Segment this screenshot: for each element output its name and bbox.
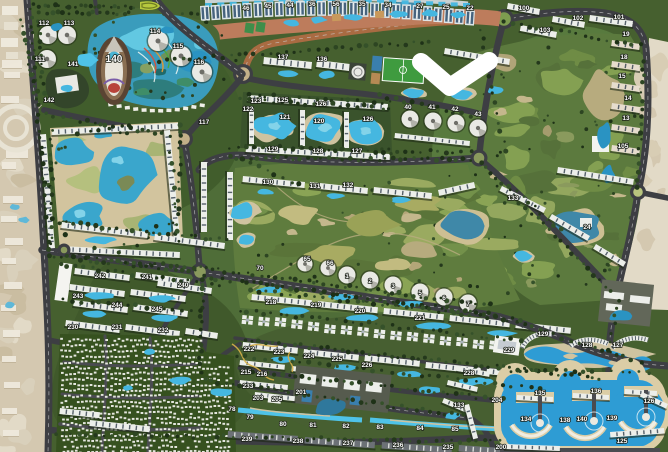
svg-text:6: 6 <box>442 295 446 302</box>
svg-text:112: 112 <box>39 20 50 27</box>
svg-text:126: 126 <box>644 398 655 405</box>
svg-text:135: 135 <box>535 390 546 397</box>
svg-text:2: 2 <box>368 278 372 285</box>
svg-text:237: 237 <box>343 440 354 447</box>
svg-text:42: 42 <box>451 106 459 113</box>
svg-text:36: 36 <box>308 1 316 8</box>
svg-text:222: 222 <box>244 346 255 353</box>
svg-text:117: 117 <box>199 119 210 126</box>
svg-text:83: 83 <box>376 424 384 431</box>
svg-text:103: 103 <box>540 27 551 34</box>
svg-text:123: 123 <box>251 98 262 105</box>
svg-text:141: 141 <box>68 61 79 68</box>
svg-text:85: 85 <box>451 426 459 433</box>
svg-text:133: 133 <box>454 402 465 409</box>
svg-text:27: 27 <box>416 3 424 10</box>
svg-text:84: 84 <box>416 425 424 432</box>
svg-text:80: 80 <box>279 421 287 428</box>
svg-text:66: 66 <box>326 260 334 267</box>
svg-text:115: 115 <box>173 43 184 50</box>
svg-text:122: 122 <box>243 106 254 113</box>
svg-text:133: 133 <box>508 195 519 202</box>
svg-text:240: 240 <box>178 282 189 289</box>
svg-text:46: 46 <box>242 5 250 12</box>
svg-text:132: 132 <box>343 182 354 189</box>
svg-text:136: 136 <box>317 56 328 63</box>
svg-text:18: 18 <box>620 54 628 61</box>
svg-text:140: 140 <box>577 416 588 423</box>
svg-text:126: 126 <box>316 101 327 108</box>
svg-text:113: 113 <box>64 20 75 27</box>
svg-text:14: 14 <box>624 95 632 102</box>
svg-text:24: 24 <box>583 224 591 231</box>
svg-text:7: 7 <box>466 301 470 308</box>
svg-text:242: 242 <box>95 273 106 280</box>
svg-text:79: 79 <box>246 414 254 421</box>
svg-text:81: 81 <box>309 422 317 429</box>
svg-text:70: 70 <box>256 265 264 272</box>
svg-text:5: 5 <box>418 290 422 297</box>
svg-text:22: 22 <box>466 5 474 12</box>
svg-text:220: 220 <box>355 308 366 315</box>
svg-text:3: 3 <box>391 283 395 290</box>
svg-text:136: 136 <box>591 388 602 395</box>
svg-text:223: 223 <box>274 349 285 356</box>
svg-text:56: 56 <box>332 1 340 8</box>
svg-text:40: 40 <box>404 104 412 111</box>
svg-text:205: 205 <box>272 396 283 403</box>
svg-text:45: 45 <box>264 3 272 10</box>
svg-text:125: 125 <box>617 438 628 445</box>
svg-text:65: 65 <box>303 256 311 263</box>
svg-text:226: 226 <box>362 362 373 369</box>
svg-text:111: 111 <box>35 56 46 63</box>
svg-text:244: 244 <box>112 302 123 309</box>
svg-text:236: 236 <box>393 442 404 449</box>
svg-text:224: 224 <box>304 353 315 360</box>
svg-text:120: 120 <box>314 118 325 125</box>
svg-text:41: 41 <box>428 104 436 111</box>
svg-text:131: 131 <box>310 183 321 190</box>
svg-text:78: 78 <box>228 406 236 413</box>
svg-text:127: 127 <box>613 342 624 349</box>
svg-text:225: 225 <box>332 356 343 363</box>
svg-text:229: 229 <box>504 347 515 354</box>
svg-text:137: 137 <box>278 54 289 61</box>
svg-text:82: 82 <box>342 423 350 430</box>
svg-text:201: 201 <box>296 389 307 396</box>
svg-text:245: 245 <box>152 306 163 313</box>
svg-text:134: 134 <box>521 416 532 423</box>
svg-text:140: 140 <box>106 54 123 65</box>
svg-text:129: 129 <box>268 146 279 153</box>
svg-text:228: 228 <box>464 370 475 377</box>
svg-text:233: 233 <box>243 383 254 390</box>
svg-text:15: 15 <box>618 73 626 80</box>
svg-text:116: 116 <box>194 59 205 66</box>
svg-text:128: 128 <box>313 148 324 155</box>
svg-text:44: 44 <box>286 2 294 9</box>
svg-text:239: 239 <box>242 436 253 443</box>
svg-text:105: 105 <box>618 143 629 150</box>
svg-text:126: 126 <box>363 116 374 123</box>
svg-text:238: 238 <box>293 438 304 445</box>
svg-text:128: 128 <box>582 342 593 349</box>
svg-text:114: 114 <box>150 28 161 35</box>
svg-text:231: 231 <box>112 324 123 331</box>
svg-text:243: 243 <box>73 293 84 300</box>
svg-text:43: 43 <box>474 111 482 118</box>
svg-text:102: 102 <box>573 15 584 22</box>
svg-text:203: 203 <box>253 395 264 402</box>
svg-text:142: 142 <box>44 97 55 104</box>
svg-text:221: 221 <box>415 315 426 322</box>
svg-text:216: 216 <box>257 371 268 378</box>
svg-text:219: 219 <box>311 302 322 309</box>
svg-text:101: 101 <box>614 14 625 21</box>
svg-text:232: 232 <box>158 327 169 334</box>
svg-text:138: 138 <box>560 417 571 424</box>
svg-text:19: 19 <box>622 31 630 38</box>
svg-text:200: 200 <box>496 444 507 451</box>
svg-text:34: 34 <box>384 2 392 9</box>
svg-text:1: 1 <box>345 273 349 280</box>
svg-text:121: 121 <box>280 114 291 121</box>
svg-text:204: 204 <box>492 397 503 404</box>
svg-text:215: 215 <box>241 369 252 376</box>
svg-text:125: 125 <box>278 97 289 104</box>
svg-text:130: 130 <box>263 179 274 186</box>
svg-text:127: 127 <box>352 148 363 155</box>
svg-text:100: 100 <box>519 5 530 12</box>
svg-text:139: 139 <box>607 415 618 422</box>
svg-text:241: 241 <box>142 274 153 281</box>
svg-text:218: 218 <box>266 299 277 306</box>
svg-text:35: 35 <box>358 1 366 8</box>
svg-text:129: 129 <box>538 331 549 338</box>
svg-text:25: 25 <box>442 4 450 11</box>
svg-text:13: 13 <box>622 115 630 122</box>
svg-text:235: 235 <box>443 444 454 451</box>
svg-text:230: 230 <box>68 324 79 331</box>
